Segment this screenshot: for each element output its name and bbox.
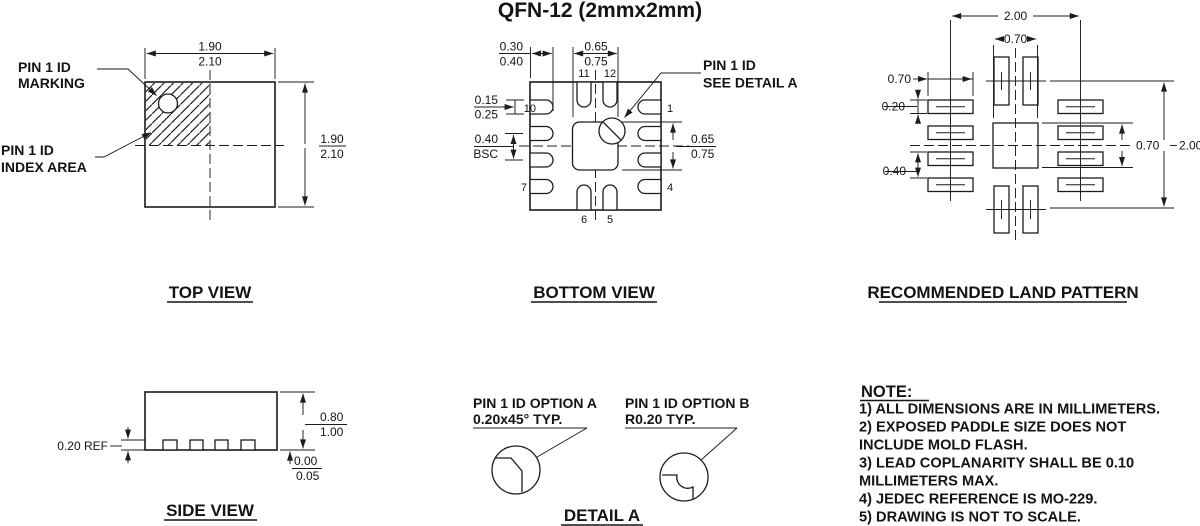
dim-horizontal-span: 2.00 (1004, 9, 1028, 23)
top-view: 1.90 2.10 1.90 2.10 PIN 1 ID MARKING PIN… (1, 40, 346, 303)
dim-center-pad-height: 0.70 (1136, 139, 1160, 153)
dim-right-height: 1.90 2.10 (278, 82, 346, 207)
pin1-index-hatch-area (146, 83, 211, 145)
dim-pitch: 0.40 BSC (473, 132, 523, 161)
pin-5: 5 (607, 214, 613, 226)
dim-epad-height-max: 0.75 (691, 147, 715, 161)
note-line-2: 2) EXPOSED PADDLE SIZE DOES NOT (859, 420, 1126, 436)
note-line-7: 5) DRAWING IS NOT TO SCALE. (859, 510, 1081, 526)
side-view-title: SIDE VIEW (166, 501, 255, 520)
dim-lead-length-max: 0.40 (500, 55, 524, 69)
notes-block: NOTE: 1) ALL DIMENSIONS ARE IN MILLIMETE… (859, 383, 1160, 526)
land-pattern-title: RECOMMENDED LAND PATTERN (867, 283, 1138, 302)
pin1-index-callout: PIN 1 ID INDEX AREA (1, 133, 151, 176)
option-a: PIN 1 ID OPTION A 0.20x45° TYP. (473, 395, 597, 494)
dim-pad-length: 0.70 (888, 72, 973, 96)
dim-lead-width-min: 0.15 (475, 93, 499, 107)
dim-pitch-qualifier: BSC (473, 147, 498, 161)
side-view: 0.20 REF 0.80 1.00 0.00 0.05 SIDE VIEW (57, 392, 347, 520)
dim-lead-width-max: 0.25 (475, 108, 499, 122)
option-b-label-line2: R0.20 TYP. (625, 411, 696, 427)
note-line-6: 4) JEDEC REFERENCE IS MO-229. (859, 492, 1097, 508)
option-a-label-line1: PIN 1 ID OPTION A (473, 395, 597, 411)
pin1-marking-label-line2: MARKING (18, 75, 85, 91)
dim-land-pitch: 0.40 (883, 152, 927, 178)
option-b-label-line1: PIN 1 ID OPTION B (625, 395, 749, 411)
pin1-index-label-line1: PIN 1 ID (1, 142, 54, 158)
pin-4: 4 (667, 182, 673, 194)
dim-epad-width-max: 0.75 (584, 55, 608, 69)
option-b: PIN 1 ID OPTION B R0.20 TYP. (625, 395, 749, 501)
dim-package-height: 0.80 1.00 (280, 392, 347, 450)
pin1-callout-line2: SEE DETAIL A (703, 75, 798, 91)
bottom-view-title: BOTTOM VIEW (533, 283, 655, 302)
dim-land-pitch: 0.40 (883, 164, 907, 178)
dim-vertical-span: 2.00 (1179, 139, 1200, 153)
dim-epad-width-min: 0.65 (584, 40, 608, 54)
pin-10: 10 (524, 103, 536, 115)
pin-12: 12 (604, 68, 616, 80)
detail-a: PIN 1 ID OPTION A 0.20x45° TYP. PIN 1 ID… (473, 395, 749, 525)
dim-pitch-value: 0.40 (475, 132, 499, 146)
pin-1: 1 (667, 103, 673, 115)
detail-a-title: DETAIL A (564, 506, 640, 525)
dim-height-max: 2.10 (320, 147, 344, 161)
dim-standoff-max: 0.05 (296, 469, 320, 483)
dim-lead-thickness: 0.20 REF (57, 427, 146, 463)
dim-standoff: 0.00 0.05 (290, 452, 322, 483)
dim-epad-height-min: 0.65 (691, 132, 715, 146)
dim-horizontal-span: 2.00 (952, 9, 1079, 23)
dim-height-max: 1.00 (320, 425, 344, 439)
option-a-label-line2: 0.20x45° TYP. (473, 411, 562, 427)
top-view-title: TOP VIEW (169, 283, 252, 302)
qfn-drawing-canvas: QFN-12 (2mmx2mm) 1.90 2.10 1.90 2.10 PIN… (0, 0, 1200, 526)
note-line-1: 1) ALL DIMENSIONS ARE IN MILLIMETERS. (859, 402, 1160, 418)
detail-circle-chamfer (492, 446, 540, 494)
pin-11: 11 (578, 68, 589, 80)
dim-lead-length-min: 0.30 (500, 40, 524, 54)
dim-pad-length: 0.70 (888, 72, 912, 86)
pin1-index-label-line2: INDEX AREA (1, 159, 87, 175)
detail-circle-radius (660, 453, 708, 501)
dim-height-min: 0.80 (320, 410, 344, 424)
dim-lead-width: 0.15 0.25 (474, 93, 524, 122)
bottom-view: 11 12 10 7 1 4 6 5 0.30 0.40 0.65 0.75 (473, 40, 797, 303)
dim-width-min: 1.90 (198, 40, 222, 54)
note-line-4: 3) LEAD COPLANARITY SHALL BE 0.10 (859, 456, 1134, 472)
pin1-marking-label-line1: PIN 1 ID (18, 59, 71, 75)
land-pattern: 2.00 0.70 0.70 0.20 (867, 9, 1200, 302)
pin1-marking-callout: PIN 1 ID MARKING (18, 59, 157, 96)
note-line-5: MILLIMETERS MAX. (859, 474, 998, 490)
pin-7: 7 (521, 182, 527, 194)
pin-6: 6 (581, 214, 587, 226)
pin1-id-marking-circle (159, 94, 178, 113)
dim-standoff-min: 0.00 (294, 454, 318, 468)
notes-heading: NOTE: (861, 383, 912, 401)
note-line-3: INCLUDE MOLD FLASH. (859, 438, 1028, 454)
pin1-callout-line1: PIN 1 ID (703, 57, 756, 73)
dim-pad-width: 0.20 (882, 92, 927, 122)
package-drawing-page: QFN-12 (2mmx2mm) 1.90 2.10 1.90 2.10 PIN… (0, 0, 1200, 526)
dim-width-max: 2.10 (198, 55, 222, 69)
dim-center-pad-width: 0.70 (1004, 32, 1028, 46)
dim-pad-width: 0.20 (882, 100, 906, 114)
page-title: QFN-12 (2mmx2mm) (498, 0, 702, 22)
dim-lead-thickness: 0.20 REF (57, 439, 108, 453)
dim-height-min: 1.90 (320, 132, 344, 146)
